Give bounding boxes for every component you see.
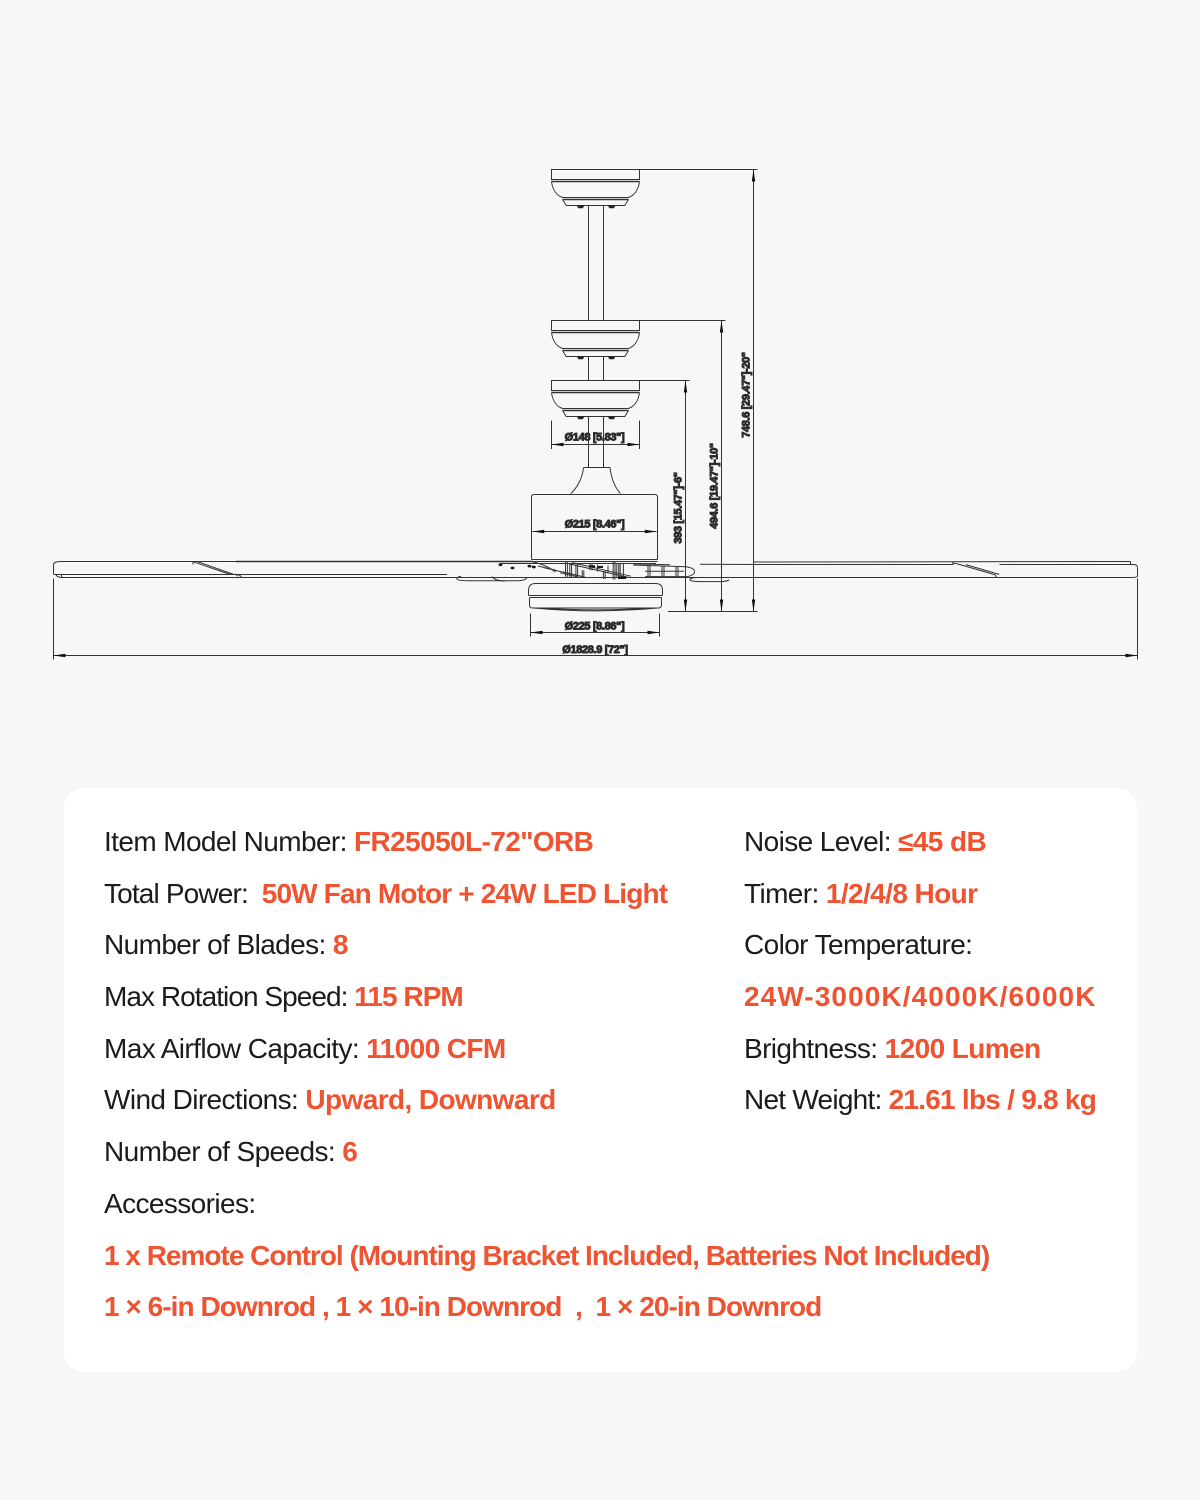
- svg-text:Ø1828.9 [72"]: Ø1828.9 [72"]: [562, 644, 628, 656]
- svg-text:393 [15.47"]-6": 393 [15.47"]-6": [673, 472, 685, 543]
- svg-text:Ø225 [8.86"]: Ø225 [8.86"]: [565, 620, 625, 632]
- svg-text:748.6 [29.47"]-20": 748.6 [29.47"]-20": [741, 352, 753, 438]
- svg-text:494.6 [19.47"]-10": 494.6 [19.47"]-10": [709, 443, 721, 529]
- svg-text:Ø148 [5.83"]: Ø148 [5.83"]: [565, 432, 625, 444]
- svg-text:Ø215 [8.46"]: Ø215 [8.46"]: [565, 518, 625, 530]
